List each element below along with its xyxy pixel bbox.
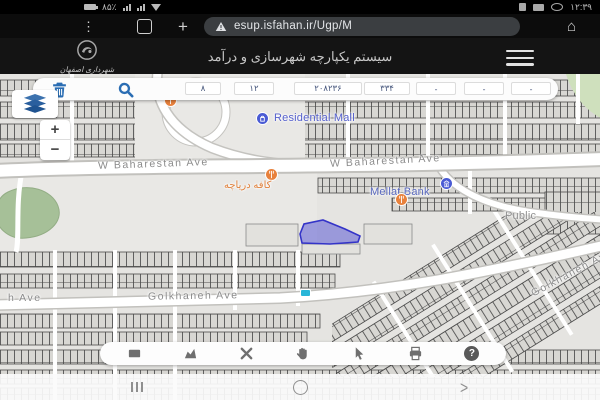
tab-switcher-button[interactable]: [137, 19, 152, 34]
field-0[interactable]: [185, 82, 221, 95]
field-1[interactable]: [234, 82, 274, 95]
pan-button[interactable]: [295, 346, 311, 362]
print-button[interactable]: [408, 346, 424, 362]
logo-caption: شهرداری اصفهان: [52, 65, 122, 74]
cursor-icon: [352, 346, 367, 361]
menu-button[interactable]: [506, 50, 534, 70]
poi-label-mall: Residential Mall: [274, 112, 355, 124]
street-label-golkhaneh: Golkhaneh Ave: [148, 289, 239, 303]
address-bar[interactable]: esup.isfahan.ir/Ugp/M: [204, 17, 520, 36]
mall-poi-icon[interactable]: [256, 112, 269, 125]
mobile-screen: ۸۵٪ ۱۲:۳۹ ⋮ + esup.isfahan.ir/Ugp/M ⌂: [0, 0, 600, 400]
field-5[interactable]: [464, 82, 504, 95]
warning-icon: [215, 21, 227, 32]
map-canvas[interactable]: W Baharestan Ave W Baharestan Ave Golkha…: [0, 74, 600, 400]
bank-poi-icon[interactable]: [440, 177, 453, 190]
field-3[interactable]: [364, 82, 410, 95]
bus-stop-marker[interactable]: [300, 289, 311, 297]
help-button[interactable]: ?: [464, 346, 480, 362]
bottom-toolbar: ?: [100, 342, 506, 365]
selected-parcel: [300, 220, 360, 244]
cursor-button[interactable]: [351, 346, 367, 362]
field-6[interactable]: [511, 82, 551, 95]
restaurant2-poi-icon[interactable]: [395, 193, 408, 206]
home-nav-button[interactable]: [293, 380, 308, 395]
poi-label-public: Public: [505, 210, 536, 222]
hand-icon: [295, 346, 310, 361]
new-tab-button[interactable]: +: [178, 18, 188, 35]
field-2[interactable]: [294, 82, 362, 95]
street-label-h-ave: h Ave: [8, 292, 42, 304]
layers-icon: [21, 94, 49, 114]
browser-toolbar: ⋮ + esup.isfahan.ir/Ugp/M ⌂: [0, 14, 600, 38]
zoom-control: + −: [40, 120, 70, 160]
poi-label-cafe: کافه دریاچه: [224, 180, 271, 191]
close-icon: [239, 346, 254, 361]
status-bar: ۸۵٪ ۱۲:۳۹: [0, 0, 600, 14]
back-button[interactable]: >: [460, 378, 468, 396]
search-icon: [117, 81, 134, 98]
overflow-menu-icon[interactable]: ⋮: [82, 20, 95, 33]
field-4[interactable]: [416, 82, 456, 95]
help-icon: ?: [464, 346, 479, 361]
recents-button[interactable]: [131, 382, 143, 392]
search-button[interactable]: [117, 81, 134, 103]
screenshot-icon: [533, 4, 544, 11]
wifi-icon: [151, 4, 161, 11]
url-text: esup.isfahan.ir/Ugp/M: [234, 20, 352, 32]
printer-icon: [408, 346, 423, 361]
clear-button[interactable]: [239, 346, 255, 362]
clock: ۱۲:۳۹: [570, 2, 592, 13]
area-chart-icon: [183, 346, 198, 361]
map-toolbar: [33, 78, 558, 100]
zoom-out-button[interactable]: −: [40, 140, 70, 159]
app-header: شهرداری اصفهان سیستم یکپارچه شهرسازی و د…: [0, 38, 600, 74]
rect-select-button[interactable]: [126, 346, 142, 362]
sdcard-icon: [519, 3, 526, 11]
eye-icon: [551, 3, 563, 11]
signal2-icon: [137, 4, 145, 11]
rectangle-icon: [127, 346, 142, 361]
battery-icon: [84, 4, 96, 10]
android-nav-bar: >: [0, 374, 600, 400]
signal-icon: [123, 4, 131, 11]
zoom-in-button[interactable]: +: [40, 120, 70, 139]
home-button[interactable]: ⌂: [567, 19, 576, 34]
battery-percent: ۸۵٪: [102, 2, 117, 13]
area-tool-button[interactable]: [182, 346, 198, 362]
layers-button[interactable]: [12, 90, 58, 118]
